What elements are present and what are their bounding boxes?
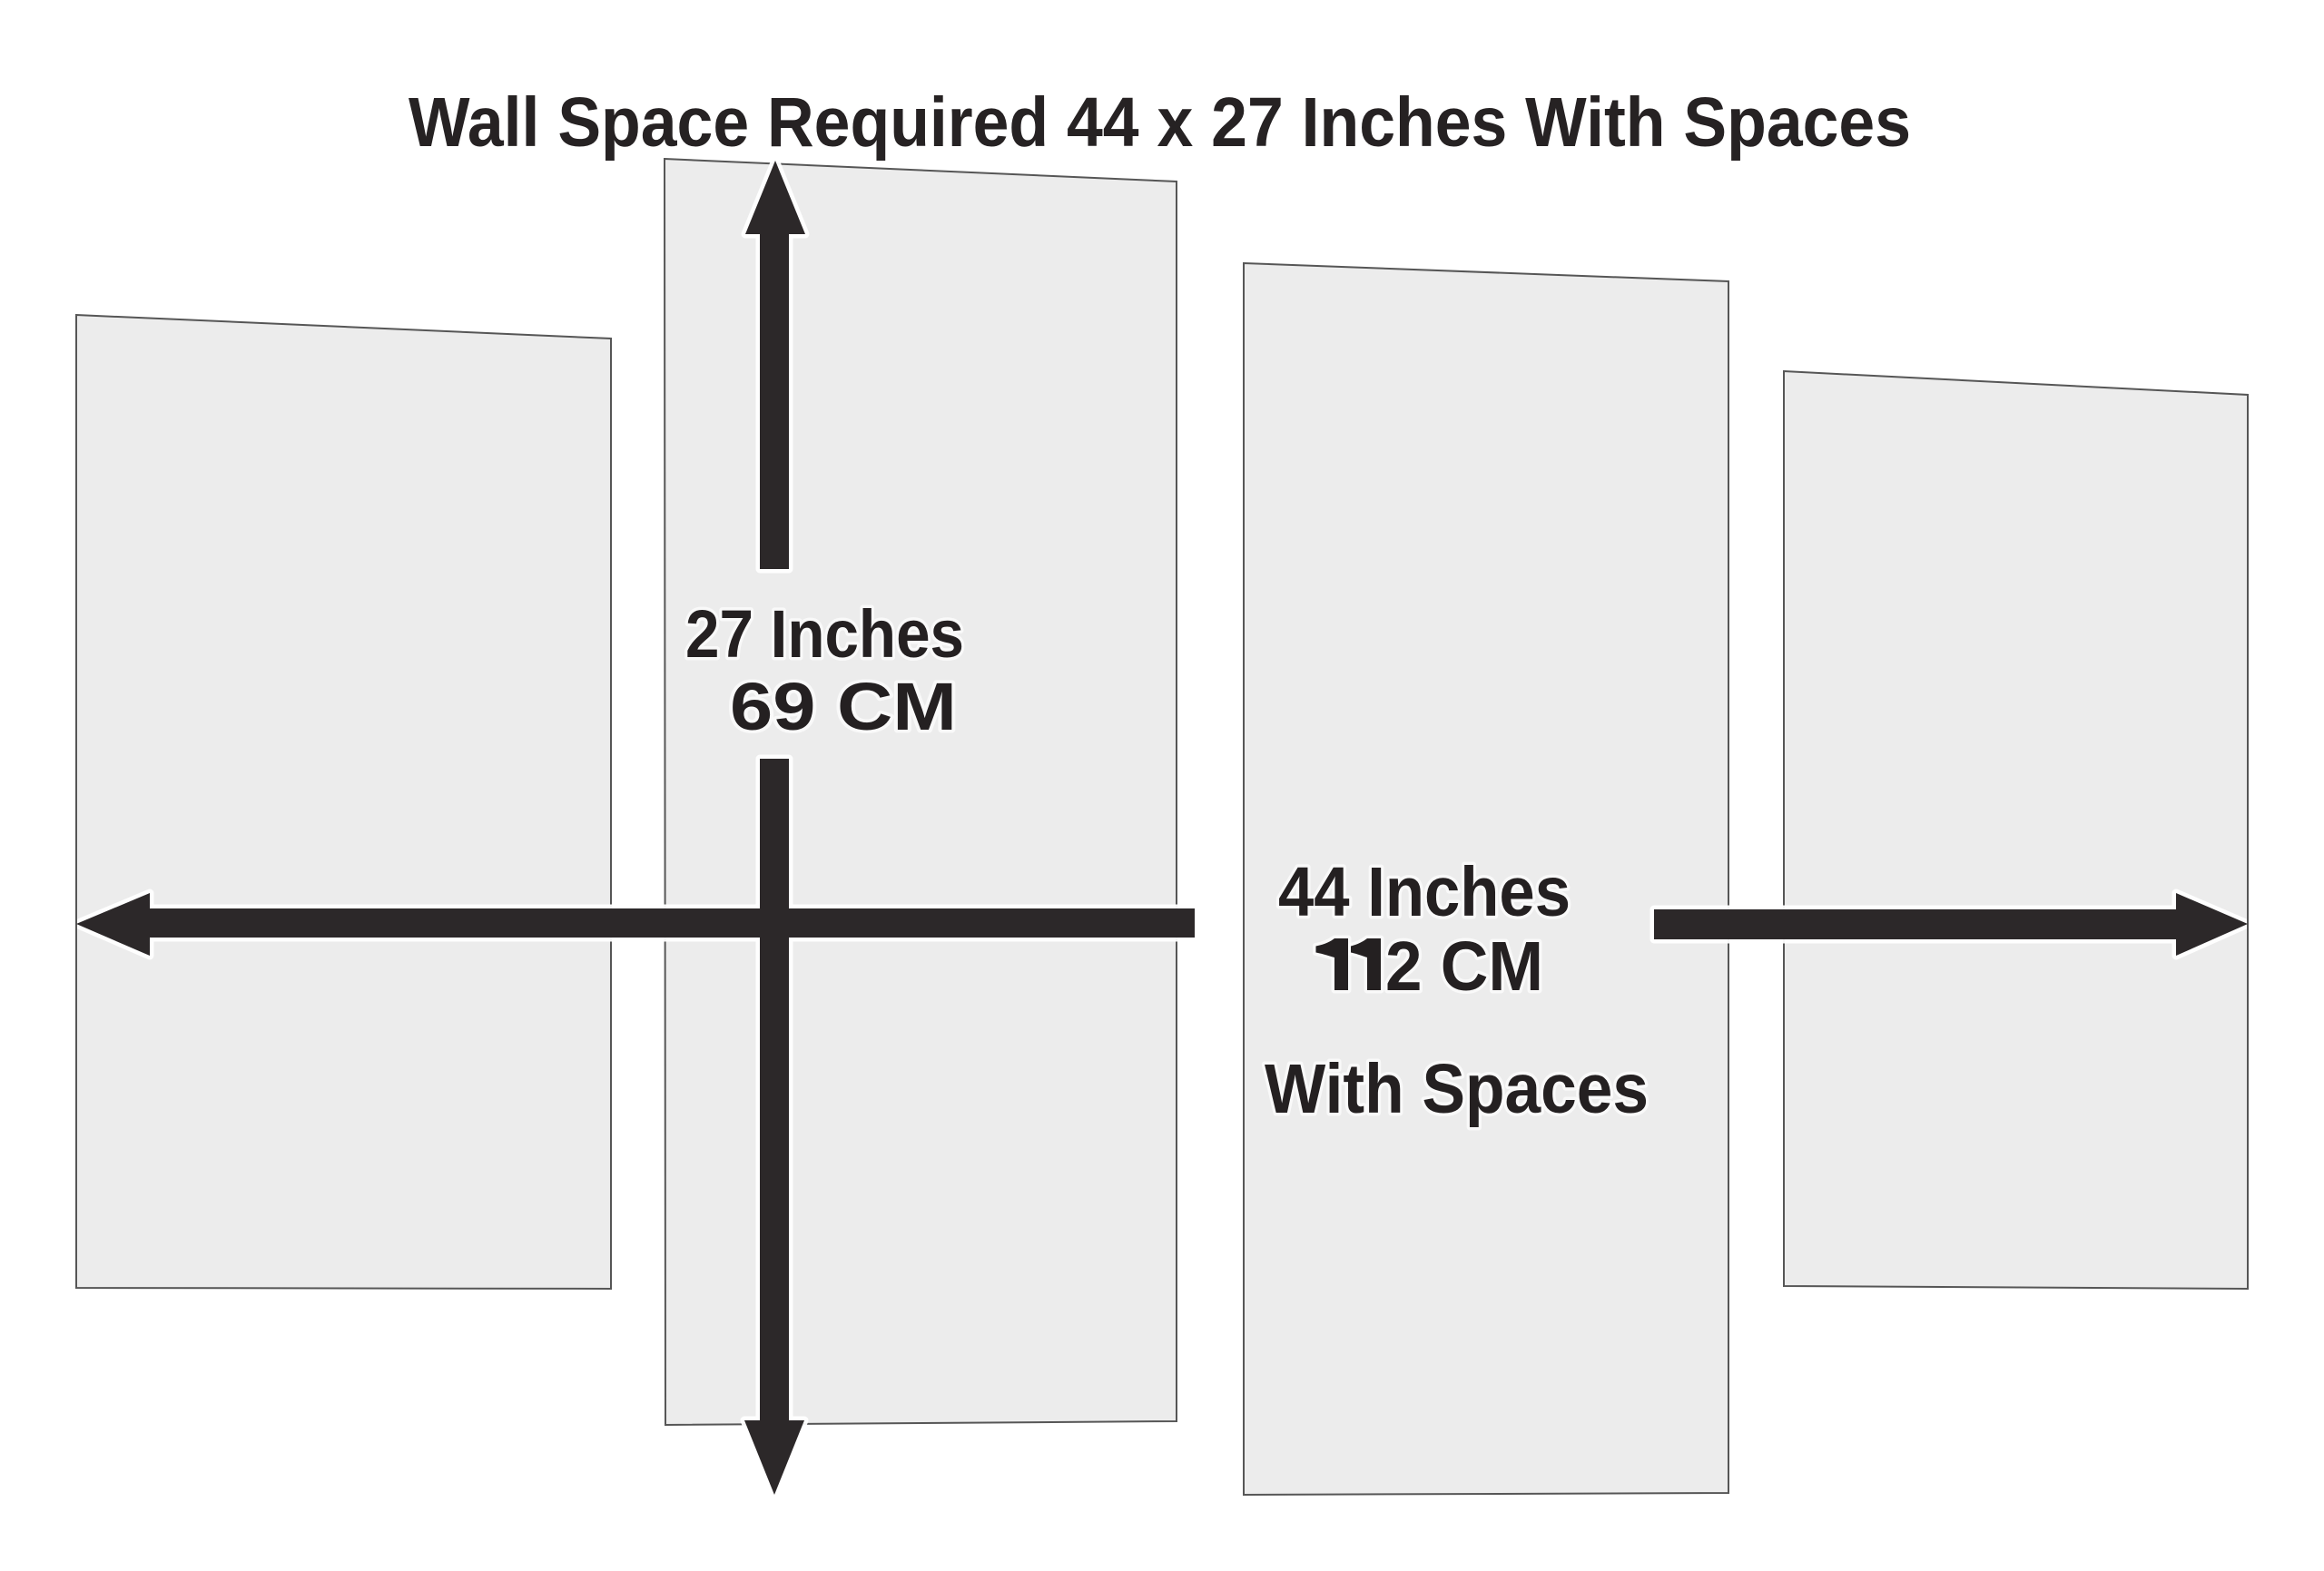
svg-text:44 Inches: 44 Inches xyxy=(1278,853,1571,931)
svg-text:2 CM: 2 CM xyxy=(1385,928,1543,1006)
svg-text:With Spaces: With Spaces xyxy=(1265,1050,1649,1128)
svg-text:27 Inches: 27 Inches xyxy=(685,596,964,672)
svg-text:Wall Space Required 44 x 27 In: Wall Space Required 44 x 27 Inches With … xyxy=(409,83,1911,162)
svg-text:69 CM: 69 CM xyxy=(730,669,957,744)
